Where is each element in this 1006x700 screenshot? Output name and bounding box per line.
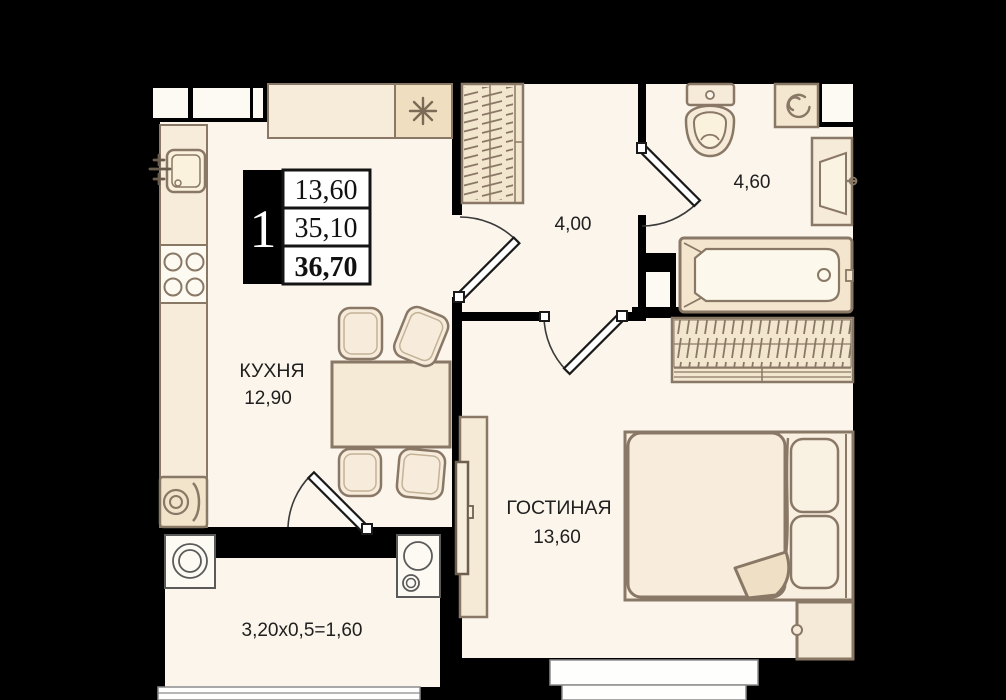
pillow xyxy=(791,439,838,512)
wall-right xyxy=(853,58,873,672)
chair-icon xyxy=(396,448,446,500)
nightstand-icon xyxy=(792,602,853,659)
entry-door-panel xyxy=(193,88,250,118)
badge-apartment-area: 35,10 xyxy=(295,213,358,244)
wardrobe-hatch-icon xyxy=(462,84,523,203)
double-bed-icon xyxy=(625,432,853,600)
chair-icon xyxy=(339,308,382,359)
asterisk-vent-icon xyxy=(410,98,436,124)
wall-bath-hall-top xyxy=(638,84,646,148)
entry-door-panel xyxy=(253,88,263,118)
plumbing-shaft-niche xyxy=(646,272,670,307)
living-room-label: ГОСТИНАЯ xyxy=(506,497,611,519)
living-window xyxy=(550,660,758,685)
washing-machine-top-icon xyxy=(165,535,215,588)
wall-kitchen-hall-upper xyxy=(452,84,462,215)
living-window-sill xyxy=(562,685,746,700)
pillow xyxy=(791,516,838,588)
wall-top xyxy=(140,58,873,84)
kitchen-door-opening xyxy=(452,215,462,297)
wall-bath-hall-mid xyxy=(638,215,646,253)
kitchen-table xyxy=(332,362,450,447)
entry-door-panel xyxy=(153,88,188,118)
tv-icon xyxy=(456,462,468,574)
kitchen-area: 12,90 xyxy=(244,388,292,409)
badge-rooms-count: 1 xyxy=(250,199,277,259)
water-heater-icon xyxy=(397,535,440,597)
area-badge: 1 13,60 35,10 36,70 xyxy=(243,170,370,284)
toilet-icon xyxy=(686,84,734,156)
corner-shaft-niche xyxy=(822,84,853,122)
hallway-area: 4,00 xyxy=(555,214,592,235)
wall-balcony-left xyxy=(148,527,165,687)
wardrobe-hatch-icon xyxy=(672,318,853,382)
bathroom-area: 4,60 xyxy=(734,172,771,193)
kitchen-label: КУХНЯ xyxy=(239,360,304,382)
floor-plan-svg: 1 13,60 35,10 36,70 xyxy=(0,0,1006,700)
stove-4-burners-icon xyxy=(160,245,207,303)
hallway-furniture xyxy=(462,84,523,203)
tv-stand-icon xyxy=(456,417,487,617)
bathtub-icon xyxy=(680,238,853,312)
chair-icon xyxy=(339,449,381,496)
living-room-area: 13,60 xyxy=(533,527,581,548)
vanity-sink-icon xyxy=(812,138,857,225)
wall-hall-living-left xyxy=(452,312,542,321)
balcony-area-formula: 3,20x0,5=1,60 xyxy=(242,620,363,641)
floor-plan-canvas: 1 13,60 35,10 36,70 xyxy=(0,0,1006,700)
under-counter-washer-icon xyxy=(160,477,207,527)
wall-niche-bottom xyxy=(818,122,853,127)
wall-left xyxy=(140,58,160,535)
bathroom-door-opening xyxy=(638,148,646,215)
badge-living-area: 13,60 xyxy=(295,175,358,206)
washing-machine-spiral-icon xyxy=(775,84,818,127)
badge-total-area: 36,70 xyxy=(295,252,358,283)
